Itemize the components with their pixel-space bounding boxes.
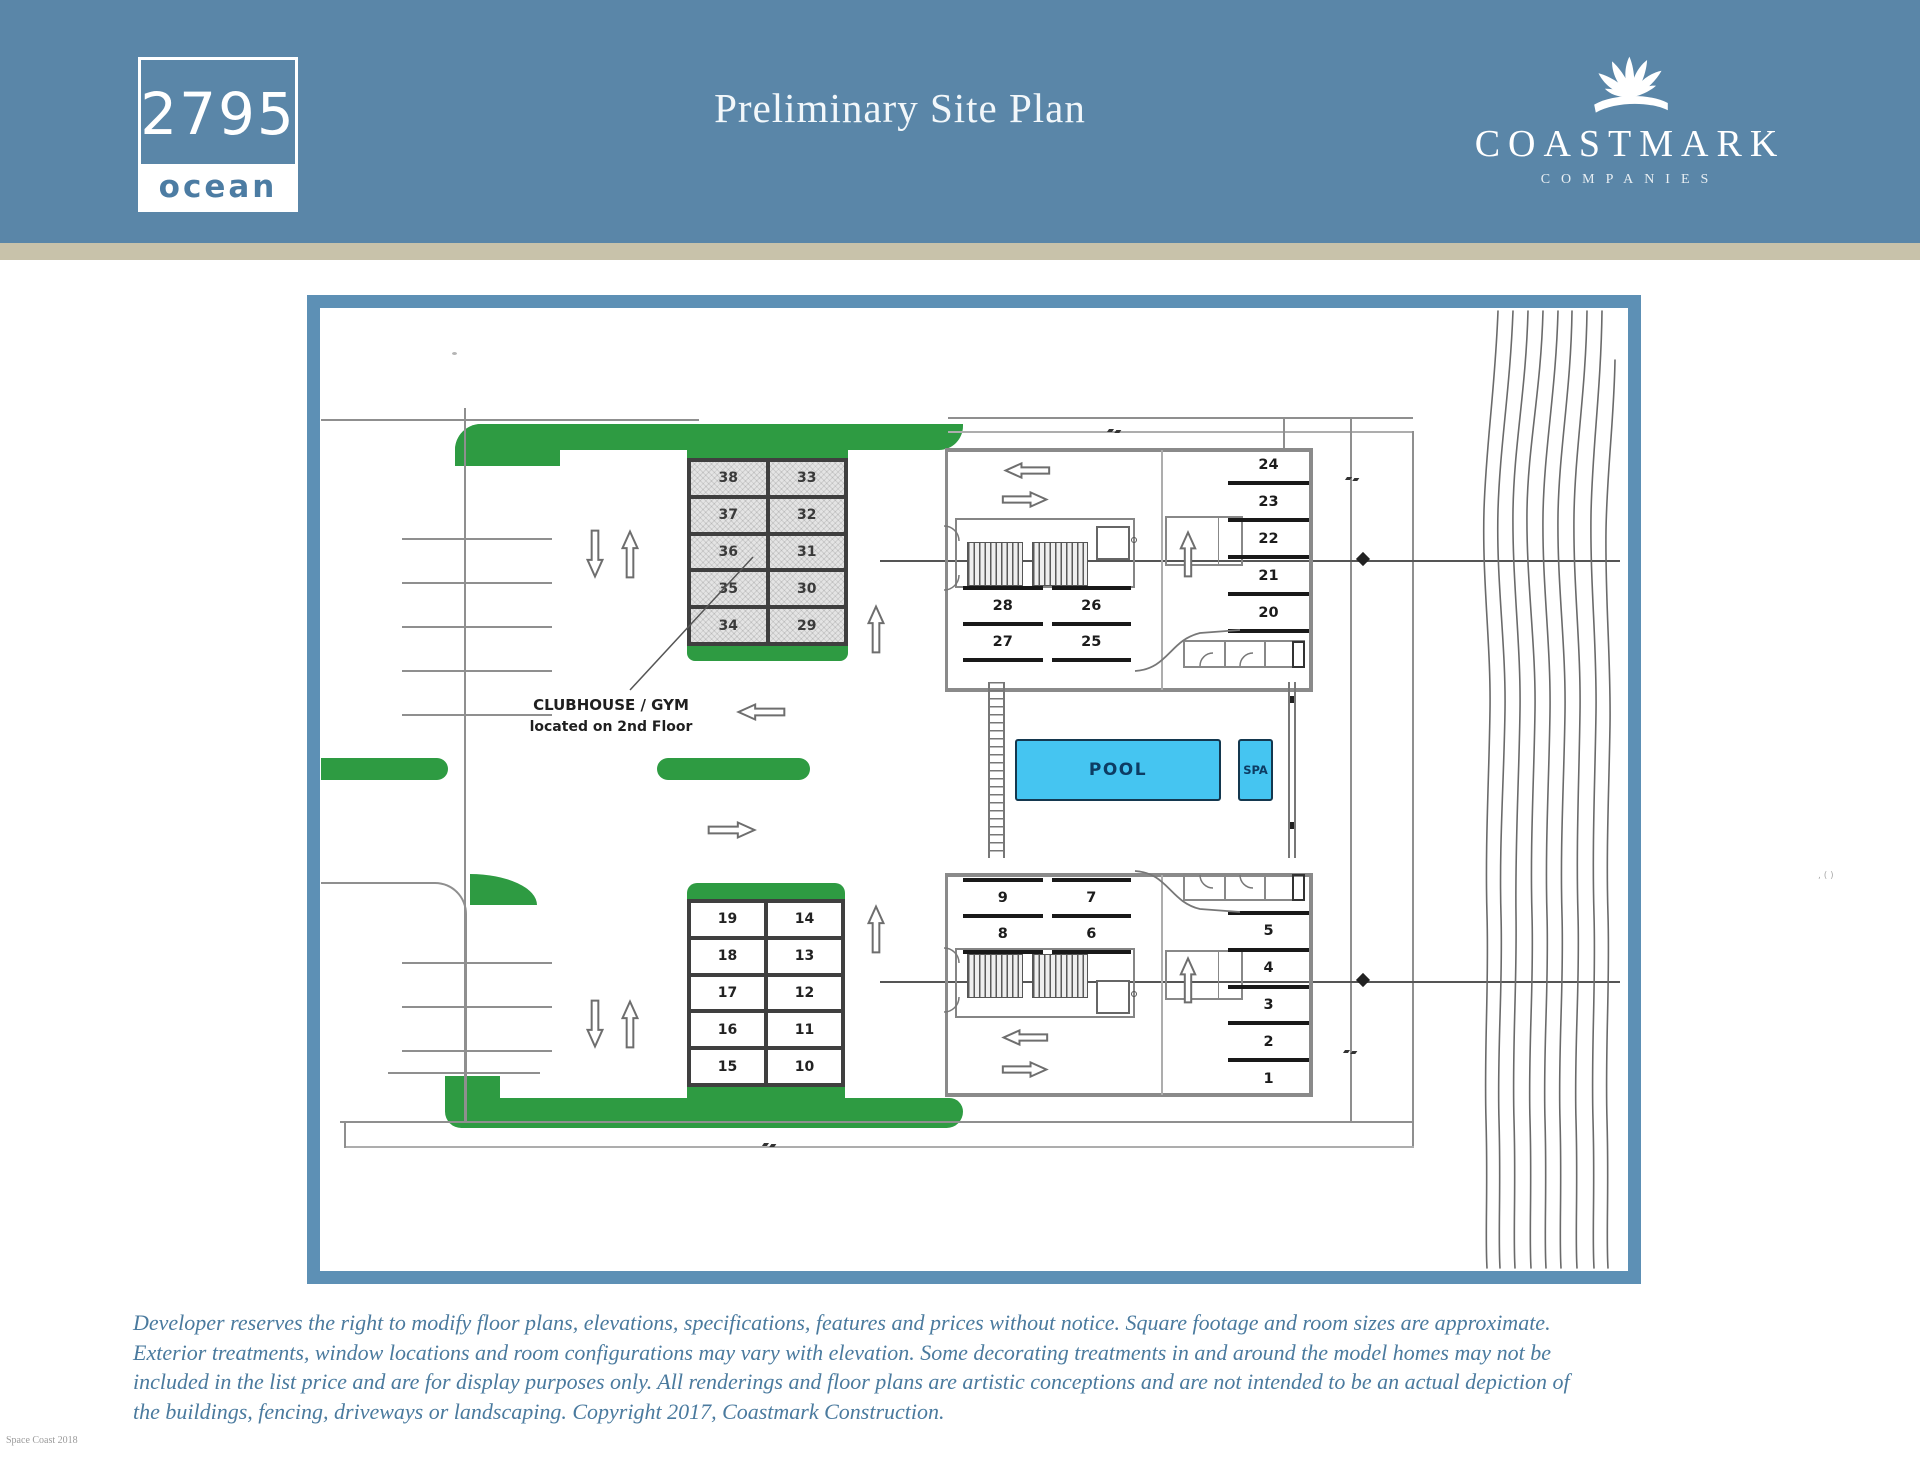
pool: POOL	[1015, 739, 1221, 801]
parking-stall: 13	[766, 938, 843, 975]
stair-elevator-core-lower	[955, 948, 1135, 1018]
parking-stall: 34	[689, 607, 768, 644]
clubhouse-note-line1: CLUBHOUSE / GYM	[500, 696, 722, 714]
elevator-icon	[1096, 526, 1130, 560]
parking-stall: 37	[689, 497, 768, 534]
parking-stall: 30	[768, 570, 847, 607]
parking-stall: 31	[768, 534, 847, 571]
page-title: Preliminary Site Plan	[520, 84, 1280, 132]
utility-rooms-upper	[1183, 640, 1305, 668]
lane-arrow-up-icon	[866, 898, 886, 960]
lane-arrow-down-icon	[585, 985, 605, 1063]
parking-stall: 33	[768, 460, 847, 497]
parking-stall: 15	[689, 1048, 766, 1085]
parking-stall: 14	[766, 901, 843, 938]
lane-arrow-up-icon	[620, 515, 640, 593]
parking-stall: 22	[1228, 522, 1309, 559]
parking-stall: 16	[689, 1011, 766, 1048]
page: 2795 ocean Preliminary Site Plan COASTMA…	[0, 0, 1920, 1483]
lane-arrow-right-icon	[1000, 1060, 1050, 1079]
parking-stall: 11	[766, 1011, 843, 1048]
parking-stall: 36	[689, 534, 768, 571]
stair-elevator-core-upper	[955, 518, 1135, 588]
parking-stall: 29	[768, 607, 847, 644]
parking-stall: 6	[1052, 918, 1132, 954]
parking-stall: 8	[963, 918, 1043, 954]
east-stalls-lower: 5 4 3 2 1	[1228, 911, 1309, 1095]
spa: SPA	[1238, 739, 1273, 801]
clubhouse-note-line2: located on 2nd Floor	[500, 719, 722, 735]
lane-arrow-up-icon	[1178, 956, 1198, 1004]
stairs-icon	[1032, 542, 1088, 586]
tan-divider-band	[0, 243, 1920, 260]
lane-arrow-left-icon	[1002, 461, 1052, 480]
lane-arrow-right-icon	[1000, 490, 1050, 509]
garage-stalls-upper: 38 33 37 32 36 31 35 30 34 29	[687, 458, 848, 646]
shell-icon	[1583, 44, 1679, 122]
lane-arrow-left-icon	[735, 702, 787, 722]
parking-stall: 5	[1228, 911, 1309, 948]
parking-stall: 3	[1228, 985, 1309, 1022]
lane-arrow-up-icon	[1178, 530, 1198, 578]
logo-number: 2795	[141, 60, 295, 167]
parking-stall: 19	[689, 901, 766, 938]
parking-stall: 27	[963, 626, 1043, 662]
parking-stall: 20	[1228, 596, 1309, 633]
parking-stall: 25	[1052, 626, 1132, 662]
parking-stall: 18	[689, 938, 766, 975]
brand-subtitle: COMPANIES	[1450, 172, 1810, 188]
parking-stall: 10	[766, 1048, 843, 1085]
parking-stall: 2	[1228, 1021, 1309, 1058]
parking-stall: 7	[1052, 878, 1132, 918]
logo-word: ocean	[141, 164, 295, 209]
walkway-steps	[988, 682, 1005, 858]
stairs-icon	[967, 954, 1023, 998]
parking-stall: 26	[1052, 586, 1132, 626]
building-stalls-upper: 28 26 27 25	[963, 586, 1131, 662]
lane-arrow-left-icon	[1000, 1028, 1050, 1047]
lane-arrow-down-icon	[585, 515, 605, 593]
parking-stall: 38	[689, 460, 768, 497]
stairs-icon	[967, 542, 1023, 586]
east-stalls-upper: 24 23 22 21 20	[1228, 448, 1309, 633]
parking-stall: 21	[1228, 559, 1309, 596]
parking-stall: 4	[1228, 948, 1309, 985]
parking-stall: 35	[689, 570, 768, 607]
parking-stall: 9	[963, 878, 1043, 918]
header-band: 2795 ocean Preliminary Site Plan COASTMA…	[0, 0, 1920, 243]
logo-2795-ocean: 2795 ocean	[138, 57, 298, 212]
parking-stall: 32	[768, 497, 847, 534]
lane-arrow-up-icon	[620, 985, 640, 1063]
elevator-icon	[1096, 980, 1130, 1014]
deck-east-wall	[1288, 682, 1296, 858]
garage-stalls-lower: 19 14 18 13 17 12 16 11 15 10	[687, 899, 845, 1087]
stairs-icon	[1032, 954, 1088, 998]
lane-arrow-up-icon	[866, 598, 886, 660]
parking-stall: 28	[963, 586, 1043, 626]
utility-rooms-lower	[1183, 873, 1305, 901]
parking-stall: 17	[689, 975, 766, 1012]
building-stalls-lower: 9 7 8 6	[963, 878, 1131, 954]
brand-name: COASTMARK	[1450, 122, 1810, 166]
watermark: Space Coast 2018	[6, 1435, 78, 1446]
parking-stall: 24	[1228, 448, 1309, 485]
scan-artifact: , ( )	[1818, 871, 1834, 881]
parking-stall: 1	[1228, 1058, 1309, 1095]
lane-arrow-right-icon	[706, 820, 758, 840]
disclaimer-text: Developer reserves the right to modify f…	[133, 1308, 1570, 1426]
parking-stall: 12	[766, 975, 843, 1012]
parking-stall: 23	[1228, 485, 1309, 522]
